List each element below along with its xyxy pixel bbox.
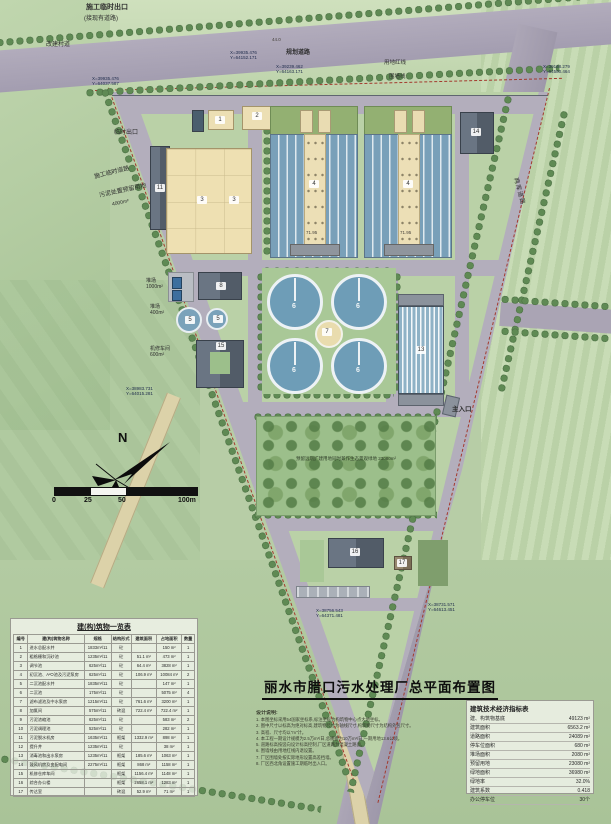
tank-green-strip xyxy=(364,106,452,136)
indicator-row: 堆场面积2080 m² xyxy=(470,751,590,760)
scale-tick: 25 xyxy=(84,497,92,504)
table-row: 10污泥调理池525m²/11 砼282 m²1 xyxy=(14,725,195,734)
drawing-title: 丽水市腊口污水处理厂总平面布置图 xyxy=(262,676,498,700)
sludge-drying-beds xyxy=(166,148,252,254)
indicator-row: 建筑面积6563.2 m² xyxy=(470,724,590,733)
table-row: 14鼓风机房及变配电间2275m²/11 框架868 m²1158 m²1 xyxy=(14,761,195,770)
indicator-row: 建、构筑物基底49123 m² xyxy=(470,715,590,724)
indicators-table-rows: 建、构筑物基底49123 m² 建筑面积6563.2 m² 道路面积24089 … xyxy=(470,715,590,805)
planned-road-label: 规划道路 xyxy=(286,50,310,58)
design-notes-lines: 1. 本图坐标采用54国家坐标系,标注坐标为构筑物中心点大地坐标。2. 图中尺寸… xyxy=(256,717,464,767)
indicators-table-panel: 建筑技术经济指标表 建、构筑物基底49123 m² 建筑面积6563.2 m² … xyxy=(466,700,594,794)
structure-badge-13: 13 xyxy=(416,346,426,354)
structure-badge-5: 5 xyxy=(185,316,195,324)
table-row: 1进水总配水井1833m²/11 砼150 m²1 xyxy=(14,644,195,653)
workshop-label: 机修车间600m² xyxy=(150,346,170,359)
main-entrance-label: 主入口 xyxy=(452,406,472,414)
table-row: 13消毒池和出水泵房1235m²/11 框架185.6 m²1063 m²1 xyxy=(14,752,195,761)
road-dimension: 44.0 xyxy=(272,37,281,42)
structure-badge-6: 6 xyxy=(292,303,296,310)
table-row: 6二沉池175m²/11 砼5075 m²4 xyxy=(14,689,195,698)
tank-dimension: 71.95 xyxy=(400,230,411,235)
structure-badge-4: 4 xyxy=(309,180,319,188)
structure-badge-7: 7 xyxy=(322,328,332,336)
structure-badge-4: 4 xyxy=(403,180,413,188)
structure-badge-15: 15 xyxy=(216,342,226,350)
table-row: 17传达室 砖混52.9 m²71 m²1 xyxy=(14,788,195,797)
table-row: 3调节池625m²/11 砼64.4 m²3828 m²1 xyxy=(14,662,195,671)
coordinate-label: X=38983.731Y=64015.281 xyxy=(126,386,153,396)
indicator-row: 停车位面积680 m² xyxy=(470,742,590,751)
structure-badge-3: 3 xyxy=(229,196,239,204)
tank-dimension: 71.95 xyxy=(306,230,317,235)
indicators-table-title: 建筑技术经济指标表 xyxy=(470,703,590,713)
design-notes: 设计说明: 1. 本图坐标采用54国家坐标系,标注坐标为构筑物中心点大地坐标。2… xyxy=(256,710,464,767)
structure-badge-6: 6 xyxy=(292,367,296,374)
structures-table-body: 1进水总配水井1833m²/11 砼150 m²1 2粗格栅和沉砂池1235m²… xyxy=(14,644,195,797)
wall-line xyxy=(112,95,548,96)
scale-bar xyxy=(54,487,198,496)
structure-badge-11: 11 xyxy=(155,184,165,192)
site-plan-canvas: 1 2 3 3 4 4 5 5 6 6 6 6 7 8 11 13 14 15 … xyxy=(0,0,611,824)
south-lawn xyxy=(418,540,448,586)
table-row: 5二沉池配水井1835m²/11 砼147 m²1 xyxy=(14,680,195,689)
sludge-reserve-area: 4000m² xyxy=(112,198,130,208)
structures-table-header-row: 编号建(构)筑物名称规格结构形式建筑面积占地面积数量 xyxy=(14,635,195,644)
small-tank xyxy=(192,110,204,132)
temp-exit-label: 施工临时出口 xyxy=(86,4,128,13)
tank-dock xyxy=(290,244,340,256)
structures-table-title: 建(构)筑物一览表 xyxy=(13,622,195,632)
structure-badge-2: 2 xyxy=(252,112,262,120)
tank-green-strip xyxy=(270,106,358,136)
structure-badge-8: 8 xyxy=(216,282,226,290)
outlet-structure xyxy=(398,394,444,406)
table-row: 9污泥浓缩池625m²/11 砼583 m²2 xyxy=(14,716,195,725)
storage-yard-1 xyxy=(168,272,194,302)
table-row: 12提升井1235m²/11 砼38 m²1 xyxy=(14,743,195,752)
temp-exit2-label: 临时出口 xyxy=(114,130,138,138)
coordinate-label: X=39168.279Y=64580.464 xyxy=(543,64,570,74)
structure-badge-16: 16 xyxy=(350,548,360,556)
temp-exit-sub-label: (接现有道路) xyxy=(84,16,118,24)
table-row: 2粗格栅和沉砂池1235m²/11 砼51.1 m²473 m²1 xyxy=(14,653,195,662)
office-lawn xyxy=(300,540,324,582)
red-line-label: 用地红线 xyxy=(384,60,406,67)
secondary-clarifier xyxy=(267,274,323,330)
structure-badge-6: 6 xyxy=(356,303,360,310)
table-row: 16综合办公楼 框架2658.1 m²1283 m²1 xyxy=(14,779,195,788)
indicator-row: 绿地率32.0% xyxy=(470,778,590,787)
yard1-label: 堆场1000m² xyxy=(146,278,163,291)
scale-tick: 100m xyxy=(178,497,196,504)
coordinate-label: X=39935.476Y=64152.171 xyxy=(230,50,257,60)
structure-badge-14: 14 xyxy=(471,128,481,136)
indicator-row: 绿地面积36980 m² xyxy=(470,769,590,778)
table-row: 15机修仓库车间 框架1156.4 m²1148 m²1 xyxy=(14,770,195,779)
table-row: 4初沉池、A²O池及污泥泵房625m²/11 砼106.9 m²10084 m²… xyxy=(14,671,195,680)
structure-badge-3: 3 xyxy=(197,196,207,204)
table-row: 8加氯间575m²/11 砖混722.4 m²722.4 m²1 xyxy=(14,707,195,716)
scale-tick: 50 xyxy=(118,497,126,504)
indicator-row: 办公停车位30个 xyxy=(470,796,590,805)
parking-strip xyxy=(296,586,370,598)
tank-dock xyxy=(384,244,434,256)
structure-badge-1: 1 xyxy=(215,116,225,124)
secondary-clarifier xyxy=(267,338,323,394)
design-notes-heading: 设计说明: xyxy=(256,710,464,717)
indicator-row: 道路面积24089 m² xyxy=(470,733,590,742)
workshop-courtyard xyxy=(210,352,230,374)
coordinate-label: X=39239.462Y=64163.171 xyxy=(276,64,303,74)
secondary-clarifier xyxy=(331,274,387,330)
coordinate-label: X=39935.476Y=64037.587 xyxy=(92,76,119,86)
village-road-label: 改建村道 xyxy=(46,42,70,50)
structures-table: 编号建(构)筑物名称规格结构形式建筑面积占地面积数量 1进水总配水井1833m²… xyxy=(13,634,195,797)
table-row: 7滤布滤池及中水泵房1215m²/11 砼761.6 m²3200 m²1 xyxy=(14,698,195,707)
filter-head-structure xyxy=(398,294,444,306)
yard2-label: 堆场400m² xyxy=(150,304,164,317)
structure-badge-6: 6 xyxy=(356,367,360,374)
coordinate-label: X=38731.571Y=64613.451 xyxy=(428,602,455,612)
garden-note-label: 预留远期扩建用地同时兼作生态景观绿地 23080m² xyxy=(262,456,430,462)
indicator-row: 建筑系数0.418 xyxy=(470,787,590,796)
structure-badge-17: 17 xyxy=(397,559,407,567)
secondary-clarifier xyxy=(331,338,387,394)
scale-tick: 0 xyxy=(52,497,56,504)
structure-badge-5: 5 xyxy=(213,315,223,323)
reserved-green-area xyxy=(256,416,436,516)
indicator-row: 预留用地23080 m² xyxy=(470,760,590,769)
table-row: 11污泥脱水机房1635m²/11 框架1332.9 m²898 m²1 xyxy=(14,734,195,743)
structures-table-panel: 建(构)筑物一览表 编号建(构)筑物名称规格结构形式建筑面积占地面积数量 1进水… xyxy=(10,618,198,796)
coordinate-label: X=38756.543Y=64371.481 xyxy=(316,608,343,618)
design-note-line: 8. 厂区西北角设置施工期临时出入口。 xyxy=(256,761,464,767)
wall-line-label: 围墙线 xyxy=(389,74,406,81)
